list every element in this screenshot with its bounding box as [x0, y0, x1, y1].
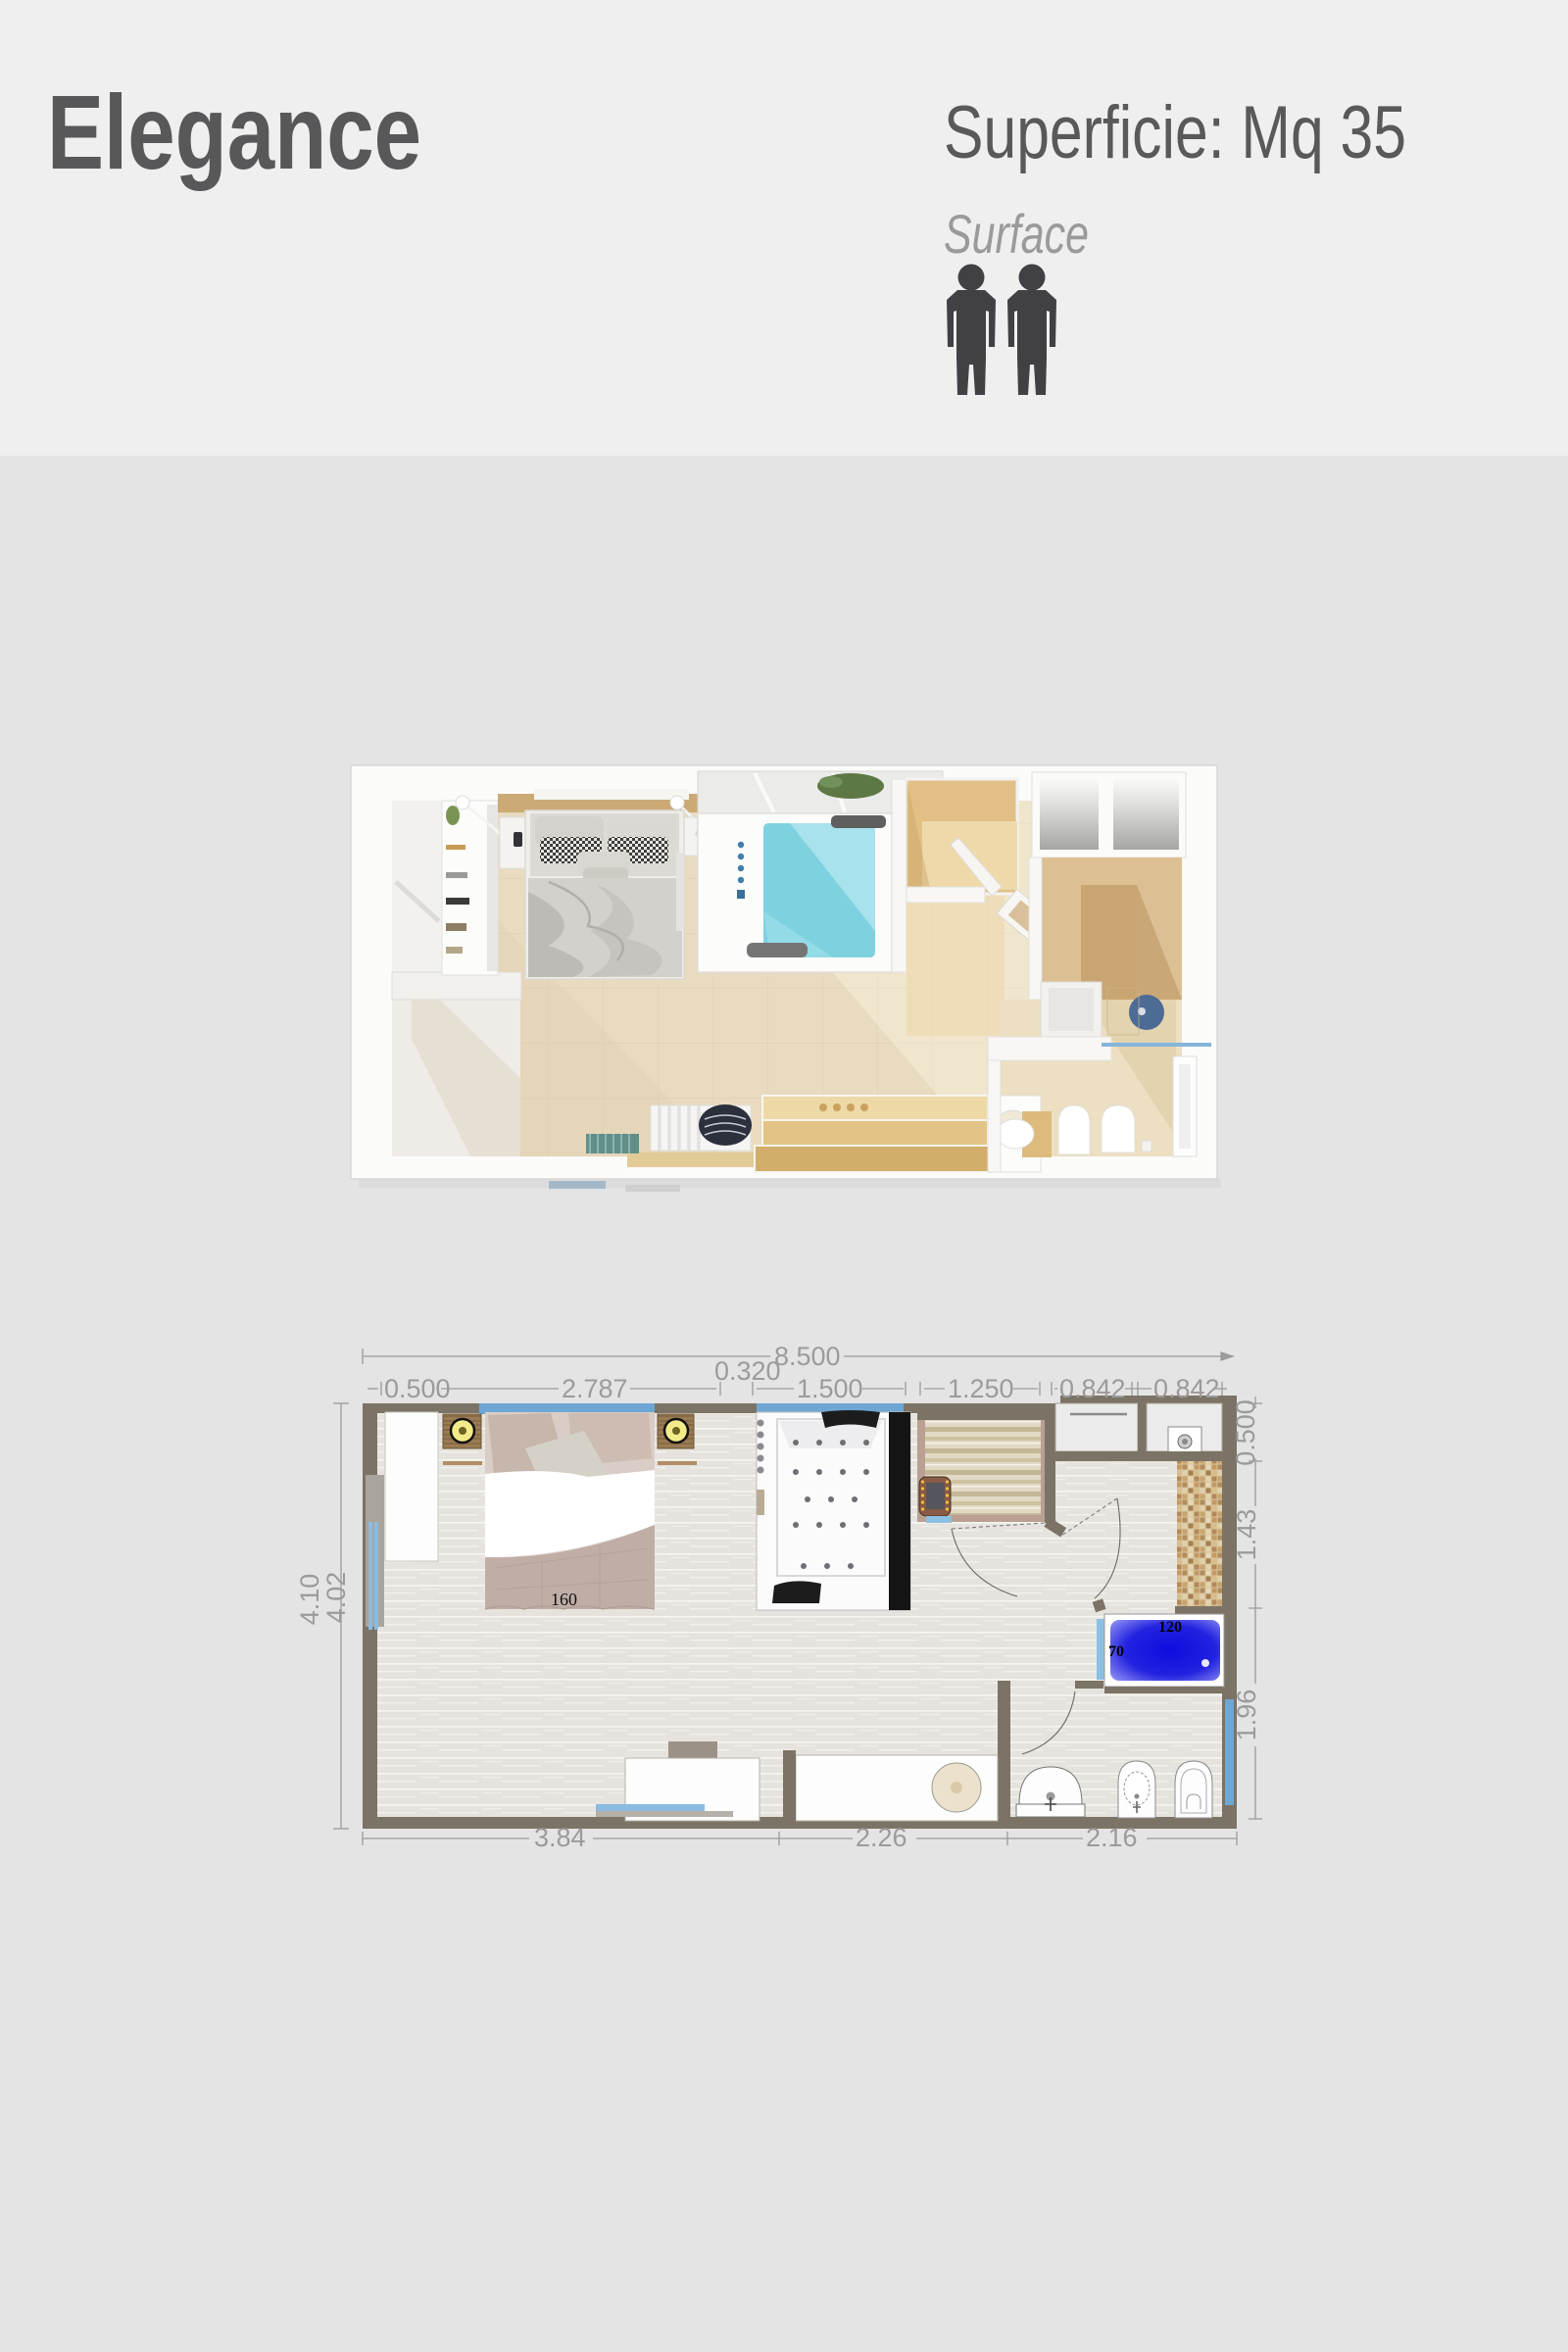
svg-text:0.842: 0.842 — [1153, 1374, 1220, 1403]
svg-text:Superficie: Mq 35: Superficie: Mq 35 — [944, 91, 1406, 174]
svg-text:2.787: 2.787 — [562, 1374, 628, 1403]
svg-text:Elegance: Elegance — [47, 73, 421, 191]
svg-text:0.500: 0.500 — [1231, 1399, 1260, 1466]
svg-text:1.250: 1.250 — [948, 1374, 1014, 1403]
svg-text:4.10: 4.10 — [295, 1574, 324, 1626]
svg-text:120: 120 — [1158, 1619, 1182, 1636]
svg-text:2.16: 2.16 — [1086, 1823, 1138, 1852]
svg-text:0.842: 0.842 — [1059, 1374, 1126, 1403]
svg-text:1.43: 1.43 — [1232, 1509, 1261, 1561]
svg-text:Surface: Surface — [944, 203, 1089, 265]
svg-text:8.500: 8.500 — [774, 1342, 841, 1371]
svg-text:1.500: 1.500 — [797, 1374, 863, 1403]
svg-text:70: 70 — [1108, 1643, 1124, 1660]
svg-text:160: 160 — [551, 1590, 577, 1609]
svg-text:1.96: 1.96 — [1232, 1690, 1261, 1741]
svg-text:2.26: 2.26 — [856, 1823, 907, 1852]
svg-text:0.320: 0.320 — [714, 1356, 781, 1386]
svg-text:4.02: 4.02 — [321, 1572, 351, 1624]
svg-text:3.84: 3.84 — [534, 1823, 586, 1852]
svg-text:0.500: 0.500 — [384, 1374, 451, 1403]
